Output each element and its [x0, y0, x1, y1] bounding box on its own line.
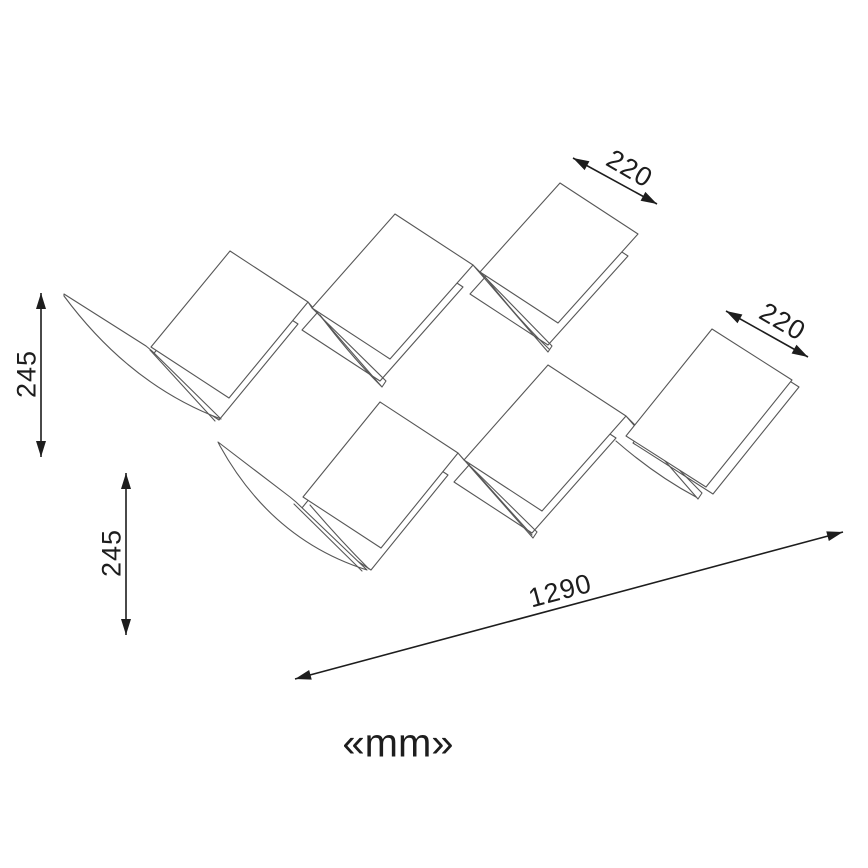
dimension-top-width: 220: [573, 144, 658, 204]
drawing-stage: 2202202452451290«mm»: [0, 0, 868, 868]
shelf-panel-face: [626, 329, 792, 487]
dimension-arrowhead: [726, 311, 742, 323]
dimension-arrowhead: [121, 473, 131, 489]
dimension-arrowhead: [792, 345, 808, 357]
shelf-panel-face: [480, 183, 638, 323]
dimension-label-right-width: 220: [754, 297, 811, 347]
dimension-label-lower-height: 245: [97, 529, 127, 577]
unit-label: «mm»: [342, 721, 453, 765]
dimension-arrowhead: [826, 531, 843, 541]
shelf-panel-face: [303, 402, 458, 548]
dimension-label-top-width: 220: [601, 144, 658, 194]
dimension-arrowhead: [121, 619, 131, 635]
dimension-left-height: 245: [12, 293, 46, 457]
shelf-row-lower-zigzag: [218, 329, 799, 571]
dimension-arrowhead: [36, 293, 46, 309]
dimension-line-length: [295, 532, 843, 679]
dimension-arrowhead: [36, 441, 46, 457]
dimension-lower-height: 245: [97, 473, 131, 635]
dimension-arrowhead: [573, 158, 589, 170]
shelf-panel-face: [312, 214, 473, 359]
shelf-panel-face: [464, 365, 626, 511]
dimension-length: 1290: [295, 531, 843, 679]
diagram-canvas: 2202202452451290«mm»: [0, 0, 868, 868]
dimension-label-length: 1290: [525, 568, 595, 614]
dimension-arrowhead: [295, 670, 312, 680]
dimension-label-left-height: 245: [12, 350, 42, 398]
dimension-arrowhead: [641, 192, 657, 204]
